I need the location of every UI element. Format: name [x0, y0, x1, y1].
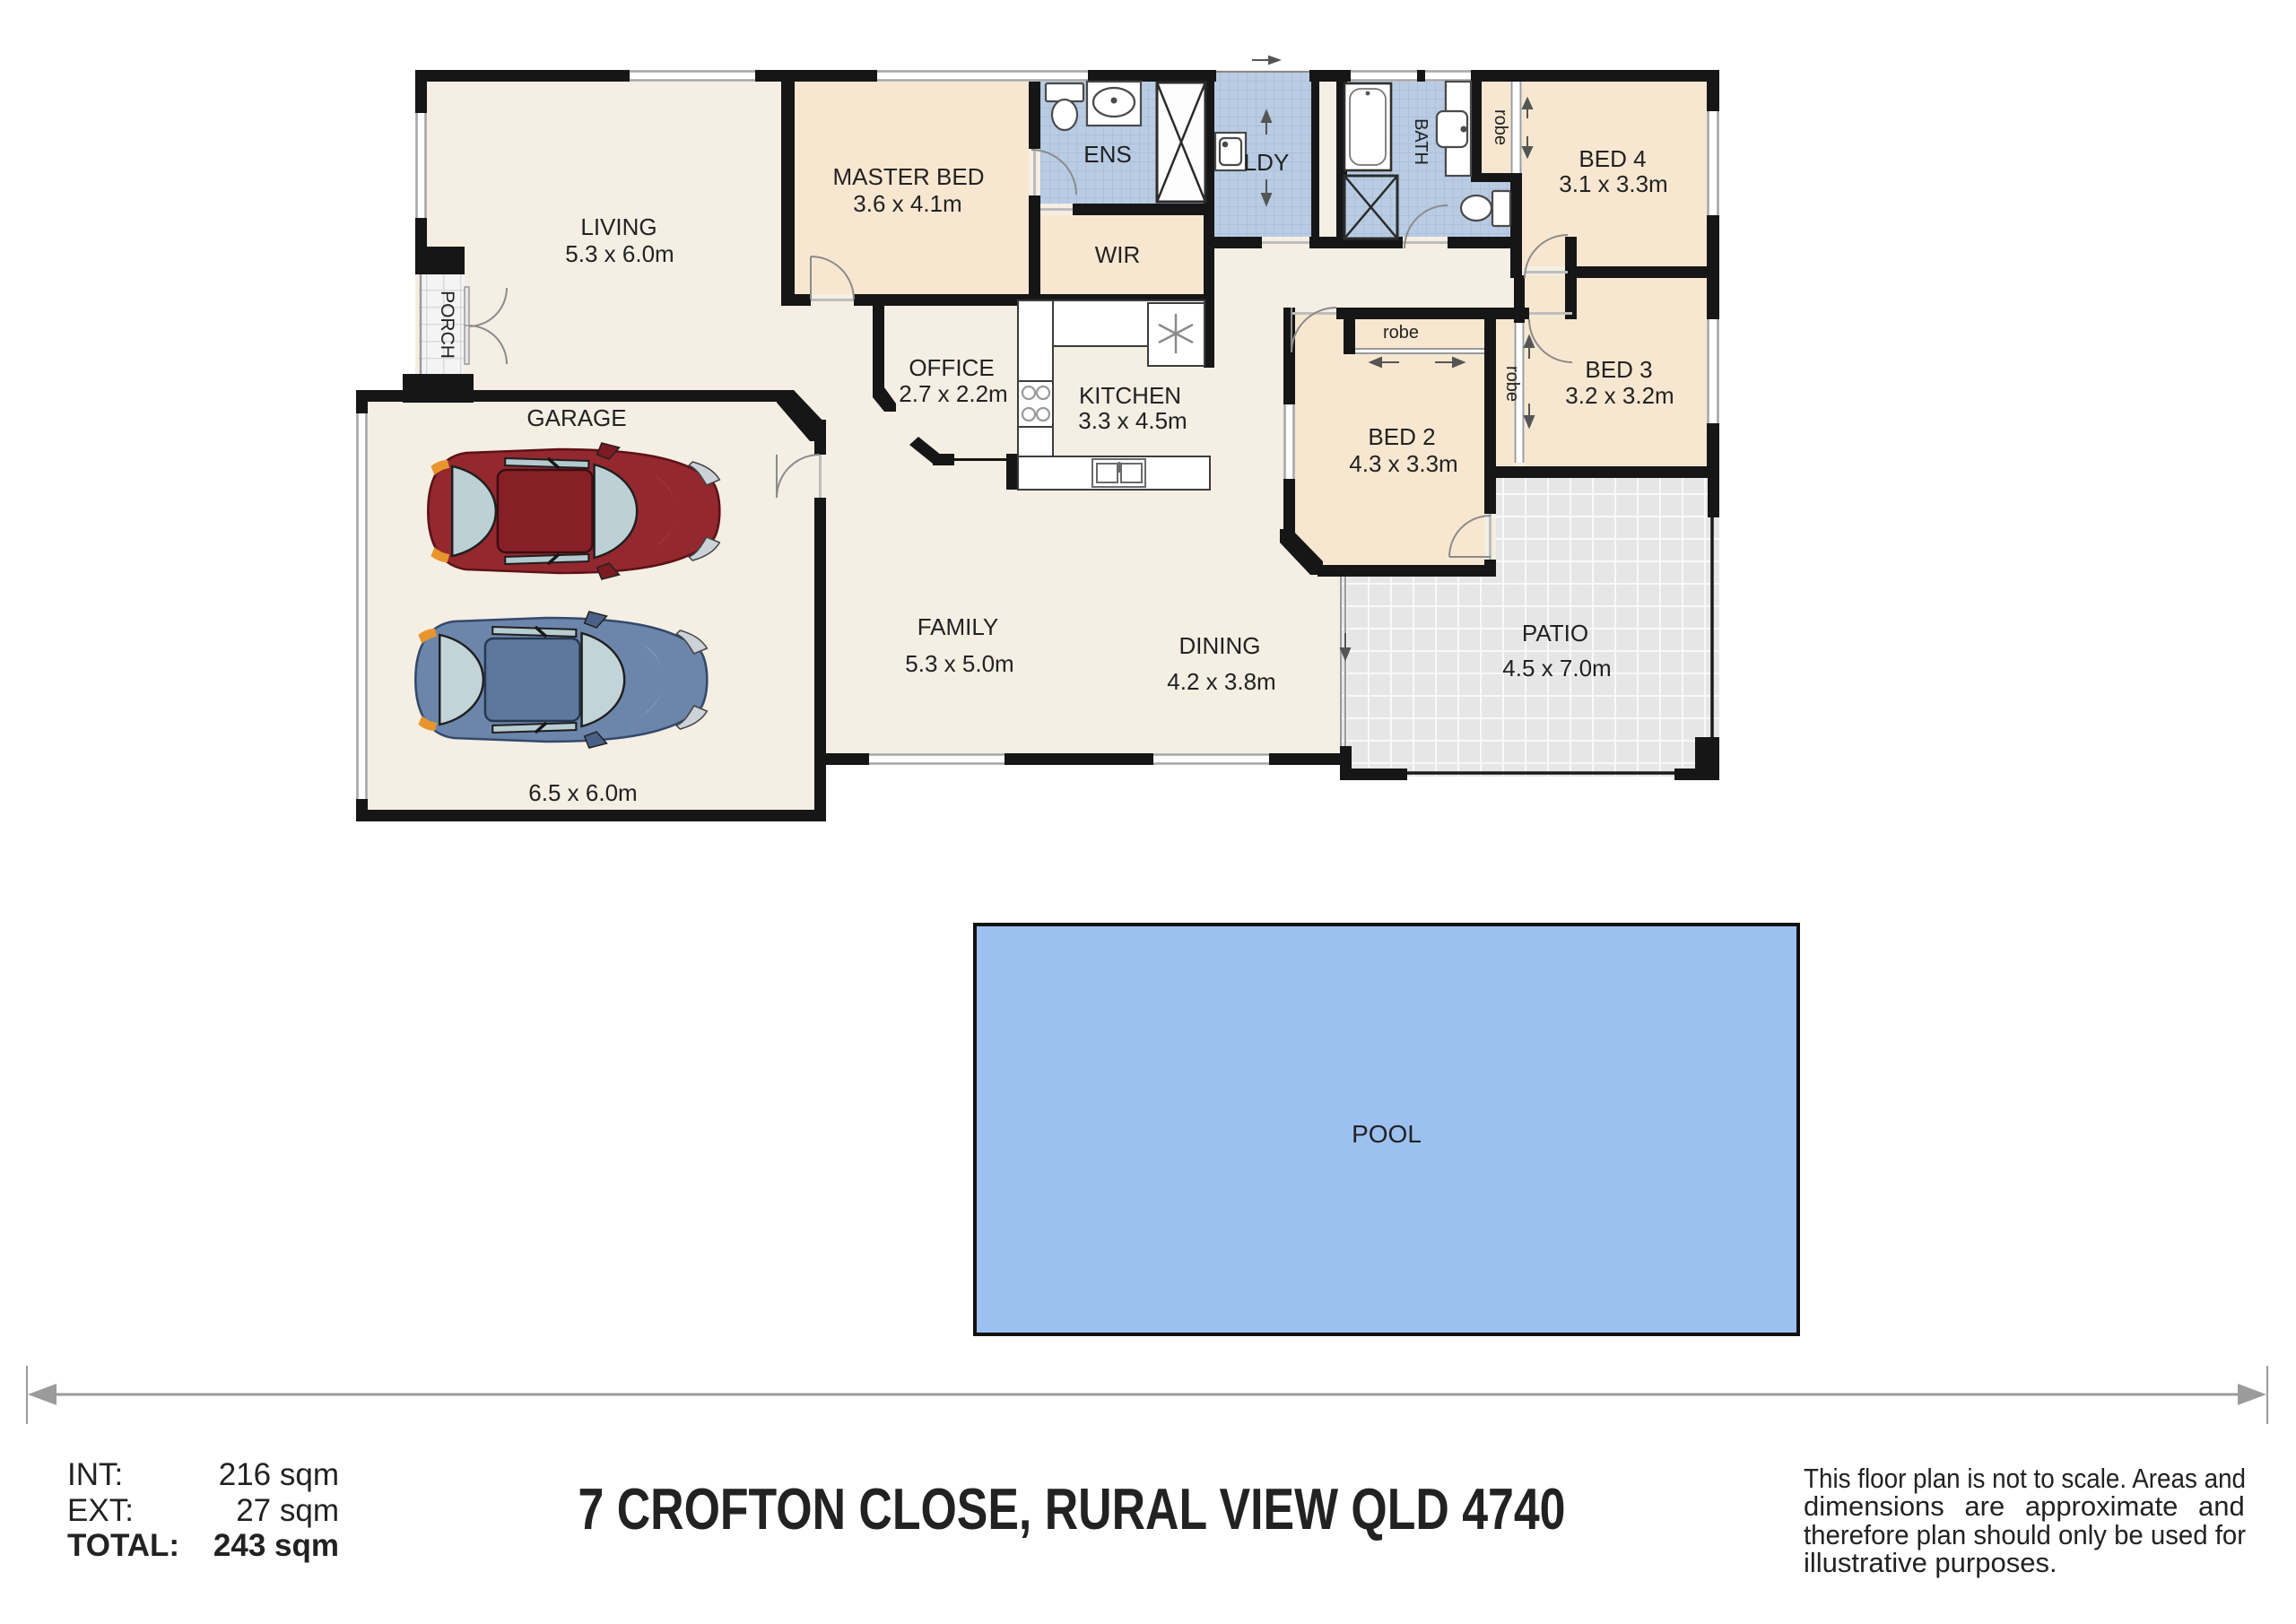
svg-text:BED 4: BED 4 [1578, 145, 1646, 172]
svg-text:EXT:: EXT: [67, 1493, 134, 1528]
svg-text:FAMILY: FAMILY [918, 613, 999, 640]
svg-text:DINING: DINING [1179, 632, 1261, 659]
svg-text:MASTER BED: MASTER BED [832, 163, 984, 190]
svg-text:TOTAL:: TOTAL: [67, 1528, 179, 1563]
svg-text:dimensions are approximate and: dimensions are approximate and [1804, 1490, 2245, 1522]
svg-text:therefore plan should only be: therefore plan should only be used for [1804, 1519, 2246, 1550]
svg-text:243 sqm: 243 sqm [213, 1528, 339, 1563]
svg-text:BED 2: BED 2 [1368, 423, 1435, 450]
svg-text:7 CROFTON CLOSE, RURAL VIEW QL: 7 CROFTON CLOSE, RURAL VIEW QLD 4740 [578, 1476, 1566, 1541]
svg-text:3.2 x 3.2m: 3.2 x 3.2m [1565, 382, 1674, 409]
svg-text:robe: robe [1383, 323, 1419, 343]
svg-text:4.3 x 3.3m: 4.3 x 3.3m [1349, 450, 1457, 477]
svg-text:5.3 x 6.0m: 5.3 x 6.0m [565, 240, 674, 267]
svg-text:4.5 x 7.0m: 4.5 x 7.0m [1502, 655, 1611, 682]
svg-text:BED 3: BED 3 [1585, 356, 1652, 383]
svg-text:3.1 x 3.3m: 3.1 x 3.3m [1559, 170, 1667, 197]
svg-text:WIR: WIR [1095, 241, 1141, 268]
svg-text:GARAGE: GARAGE [526, 404, 626, 431]
svg-text:PORCH: PORCH [437, 291, 457, 359]
svg-text:LDY: LDY [1244, 149, 1290, 176]
svg-text:POOL: POOL [1352, 1120, 1422, 1148]
svg-text:illustrative purposes.: illustrative purposes. [1804, 1547, 2057, 1578]
svg-text:PATIO: PATIO [1522, 620, 1588, 647]
svg-text:INT:: INT: [67, 1457, 123, 1492]
svg-text:2.7 x 2.2m: 2.7 x 2.2m [899, 380, 1007, 407]
svg-text:robe: robe [1491, 109, 1510, 145]
svg-text:This floor plan is not to scal: This floor plan is not to scale. Areas a… [1804, 1463, 2246, 1494]
svg-text:27 sqm: 27 sqm [236, 1493, 339, 1528]
svg-text:216 sqm: 216 sqm [219, 1457, 339, 1492]
svg-text:3.6 x 4.1m: 3.6 x 4.1m [853, 190, 961, 217]
svg-text:4.2 x 3.8m: 4.2 x 3.8m [1167, 668, 1275, 695]
svg-text:6.5 x 6.0m: 6.5 x 6.0m [528, 779, 637, 806]
svg-text:5.3 x 5.0m: 5.3 x 5.0m [905, 650, 1013, 677]
svg-text:LIVING: LIVING [580, 213, 657, 240]
svg-text:BATH: BATH [1411, 118, 1431, 165]
svg-text:robe: robe [1502, 366, 1522, 402]
svg-text:OFFICE: OFFICE [909, 354, 994, 381]
svg-text:ENS: ENS [1083, 141, 1131, 168]
svg-text:KITCHEN: KITCHEN [1079, 382, 1181, 409]
svg-text:3.3 x 4.5m: 3.3 x 4.5m [1078, 407, 1187, 434]
